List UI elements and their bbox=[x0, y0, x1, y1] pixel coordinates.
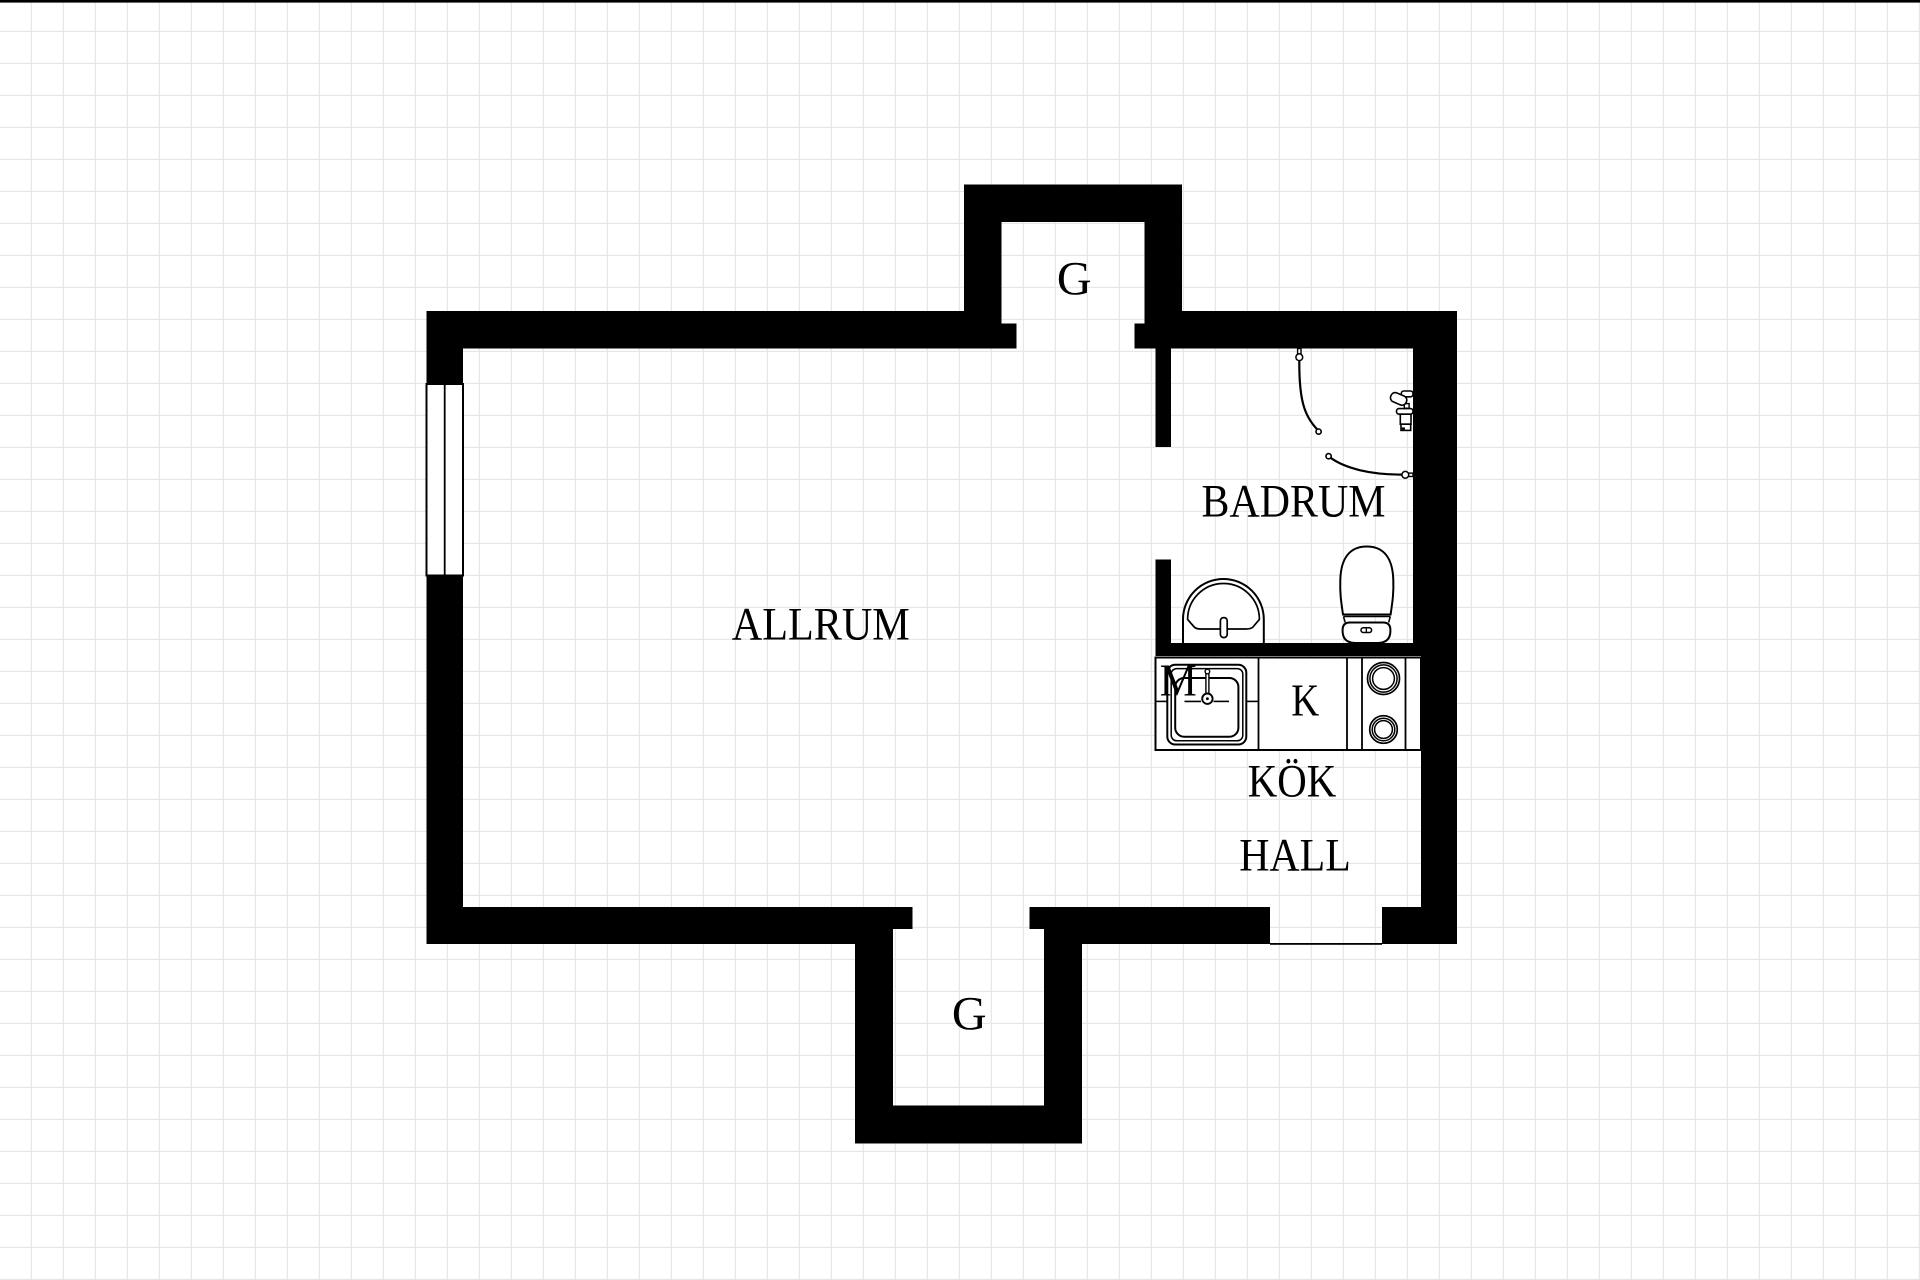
svg-text:ALLRUM: ALLRUM bbox=[732, 599, 910, 651]
svg-text:HALL: HALL bbox=[1239, 829, 1351, 881]
svg-text:G: G bbox=[952, 988, 987, 1041]
svg-text:BADRUM: BADRUM bbox=[1202, 476, 1386, 528]
svg-text:M: M bbox=[1160, 654, 1197, 705]
svg-text:G: G bbox=[1057, 253, 1092, 306]
svg-text:K: K bbox=[1291, 675, 1319, 726]
svg-text:KÖK: KÖK bbox=[1248, 755, 1337, 807]
